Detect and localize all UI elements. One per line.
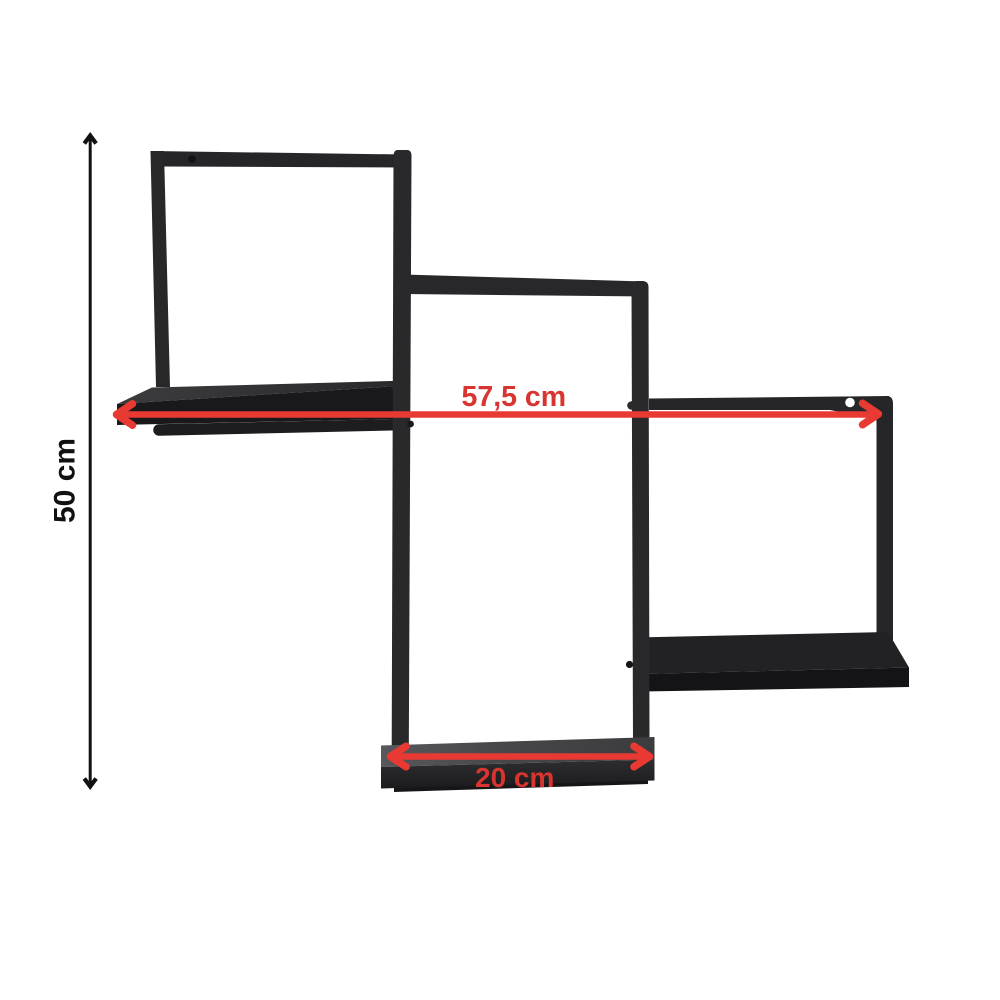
- svg-text:50 cm: 50 cm: [49, 438, 82, 523]
- svg-text:57,5 cm: 57,5 cm: [462, 381, 567, 413]
- svg-text:20 cm: 20 cm: [475, 762, 554, 793]
